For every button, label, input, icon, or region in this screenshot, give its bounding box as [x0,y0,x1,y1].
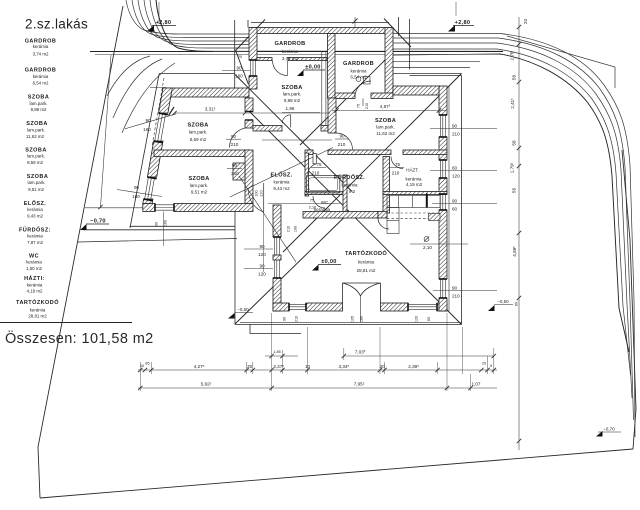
svg-text:kerámia: kerámia [30,308,46,313]
svg-text:4,19 m2: 4,19 m2 [27,289,43,294]
svg-text:11,62 m2: 11,62 m2 [376,131,395,136]
svg-text:kerámia: kerámia [27,283,43,288]
svg-text:210: 210 [295,316,299,322]
svg-text:90: 90 [236,65,242,70]
svg-text:160: 160 [235,74,243,79]
svg-text:8,59 m2: 8,59 m2 [190,137,207,142]
svg-text:28,81 m2: 28,81 m2 [28,314,47,319]
svg-text:−0,70: −0,70 [90,219,106,225]
svg-text:58: 58 [512,188,517,194]
svg-text:HÁZT.: HÁZT. [406,167,419,173]
svg-text:20: 20 [523,19,528,25]
svg-text:kerámia: kerámia [314,207,331,212]
svg-text:kerámia: kerámia [27,234,43,239]
svg-text:2,78: 2,78 [510,51,515,60]
svg-text:kerámia: kerámia [341,183,358,188]
svg-text:2,10: 2,10 [309,206,316,210]
svg-text:HÁZTI:: HÁZTI: [24,275,45,282]
svg-text:1,85: 1,85 [273,350,280,354]
svg-text:kerámia: kerámia [33,44,49,49]
svg-text:1,07: 1,07 [472,382,481,387]
svg-text:75: 75 [310,199,314,203]
svg-text:120: 120 [452,174,460,179]
svg-text:1,96: 1,96 [286,106,295,111]
svg-text:kerámia: kerámia [282,49,299,54]
svg-text:kerámia: kerámia [27,207,43,212]
svg-text:90: 90 [259,263,265,268]
svg-text:210: 210 [260,190,264,196]
svg-text:60: 60 [427,317,431,321]
svg-text:−0,50: −0,50 [237,307,249,312]
svg-text:−0,50: −0,50 [497,299,509,304]
svg-text:Összesen: 101,58 m2: Összesen: 101,58 m2 [5,329,154,347]
svg-text:GARDROB: GARDROB [274,41,305,47]
svg-text:90: 90 [283,317,287,321]
svg-text:lam.park.: lam.park. [29,101,47,106]
svg-text:SZOBA: SZOBA [188,176,209,182]
svg-text:ELŐSZ.: ELŐSZ. [270,172,292,179]
svg-text:100: 100 [294,226,298,232]
svg-text:90: 90 [155,222,159,226]
svg-text:1,50 m2: 1,50 m2 [26,266,42,271]
svg-text:90: 90 [452,198,458,203]
svg-text:kerámia: kerámia [33,74,49,79]
svg-text:5: 5 [490,364,492,368]
svg-text:120: 120 [415,316,419,322]
svg-text:210: 210 [231,171,239,176]
svg-text:20: 20 [238,55,242,59]
svg-text:105: 105 [351,316,355,322]
svg-text:3,74 m2: 3,74 m2 [282,56,299,61]
svg-text:20: 20 [482,362,486,366]
svg-text:90: 90 [134,185,140,190]
svg-text:kerámia: kerámia [26,260,42,265]
svg-text:90: 90 [232,163,238,168]
svg-text:210: 210 [338,142,346,147]
svg-text:9,51 m2: 9,51 m2 [191,190,208,195]
svg-text:kerámia: kerámia [350,69,367,74]
svg-text:9,88 m2: 9,88 m2 [31,107,47,112]
svg-text:SZOBA: SZOBA [187,123,208,129]
svg-text:20: 20 [247,364,253,369]
svg-text:lam.park.: lam.park. [27,128,45,133]
svg-text:90: 90 [145,118,151,123]
svg-text:180: 180 [360,316,364,322]
svg-text:SZOBA: SZOBA [28,95,50,101]
svg-text:+2,80: +2,80 [156,20,172,26]
svg-text:lam.park.: lam.park. [189,130,208,135]
svg-text:TARTÓZKODÓ: TARTÓZKODÓ [16,298,59,306]
svg-text:lam.park.: lam.park. [376,125,395,130]
svg-text:210: 210 [392,171,400,176]
svg-text:−0,70: −0,70 [603,427,615,432]
svg-text:3,74 m2: 3,74 m2 [33,52,49,57]
svg-text:lam.park.: lam.park. [190,183,209,188]
svg-text:120: 120 [258,252,266,257]
svg-text:TARTÓZKODÓ: TARTÓZKODÓ [345,249,387,257]
svg-text:6,54 m2: 6,54 m2 [350,75,367,80]
svg-text:kerámia: kerámia [273,180,290,185]
svg-text:90: 90 [259,244,265,249]
svg-text:120: 120 [258,272,266,277]
svg-text:SZOBA: SZOBA [26,121,48,127]
svg-text:WC: WC [321,200,329,205]
svg-text:±0,00: ±0,00 [305,65,320,71]
svg-text:kerámia: kerámia [358,260,375,265]
svg-text:75: 75 [316,162,322,167]
svg-text:FÜRDŐSZ.: FÜRDŐSZ. [334,174,365,181]
svg-text:28,81 m2: 28,81 m2 [357,268,376,273]
svg-text:100: 100 [254,190,258,196]
svg-text:FÜRDŐSZ:: FÜRDŐSZ: [19,227,51,234]
svg-text:2.sz.lakás: 2.sz.lakás [25,17,88,32]
svg-text:6,54 m2: 6,54 m2 [33,81,49,86]
svg-text:7,87 m2: 7,87 m2 [27,240,43,245]
svg-text:ELŐSZ.: ELŐSZ. [24,200,47,207]
svg-text:210: 210 [231,142,239,147]
svg-text:160: 160 [132,194,140,199]
svg-text:160: 160 [163,220,167,226]
svg-text:90: 90 [231,134,237,139]
svg-text:85: 85 [145,362,149,366]
svg-text:9,51 m2: 9,51 m2 [28,187,44,192]
svg-text:±0,00: ±0,00 [321,259,336,265]
svg-text:lam.park.: lam.park. [283,92,302,97]
svg-text:8,59 m2: 8,59 m2 [27,160,43,165]
svg-text:9,43 m2: 9,43 m2 [273,186,290,191]
svg-text:210: 210 [452,132,460,137]
svg-text:kerámia: kerámia [405,177,422,182]
svg-text:9,88 m2: 9,88 m2 [284,98,301,103]
svg-text:SZOBA: SZOBA [281,85,302,91]
svg-text:210: 210 [365,103,369,109]
svg-text:60: 60 [452,207,458,212]
svg-text:75: 75 [395,162,401,167]
svg-text:GARDROB: GARDROB [25,68,57,74]
svg-text:160: 160 [143,127,151,132]
svg-text:90: 90 [452,285,458,290]
svg-text:SZOBA: SZOBA [375,118,396,124]
svg-text:210: 210 [287,226,291,232]
svg-text:210: 210 [312,171,320,176]
svg-text:lam.park.: lam.park. [27,154,45,159]
svg-text:2,10: 2,10 [423,245,432,250]
svg-text:90: 90 [339,134,345,139]
svg-text:60: 60 [452,165,458,170]
svg-text:10: 10 [140,364,144,368]
svg-text:60: 60 [515,302,519,306]
svg-text:4,19 m2: 4,19 m2 [406,182,423,187]
svg-text:210: 210 [452,294,460,299]
svg-text:90: 90 [452,123,458,128]
svg-text:58: 58 [512,140,517,146]
svg-text:9,43 m2: 9,43 m2 [27,214,43,219]
svg-text:+2,80: +2,80 [455,20,471,26]
svg-text:m2: m2 [349,189,356,194]
svg-text:58: 58 [512,75,517,81]
svg-text:GARDROB: GARDROB [343,61,374,67]
svg-text:11,62 m2: 11,62 m2 [26,134,45,139]
svg-text:75: 75 [357,104,361,108]
svg-text:lam.park.: lam.park. [27,180,45,185]
